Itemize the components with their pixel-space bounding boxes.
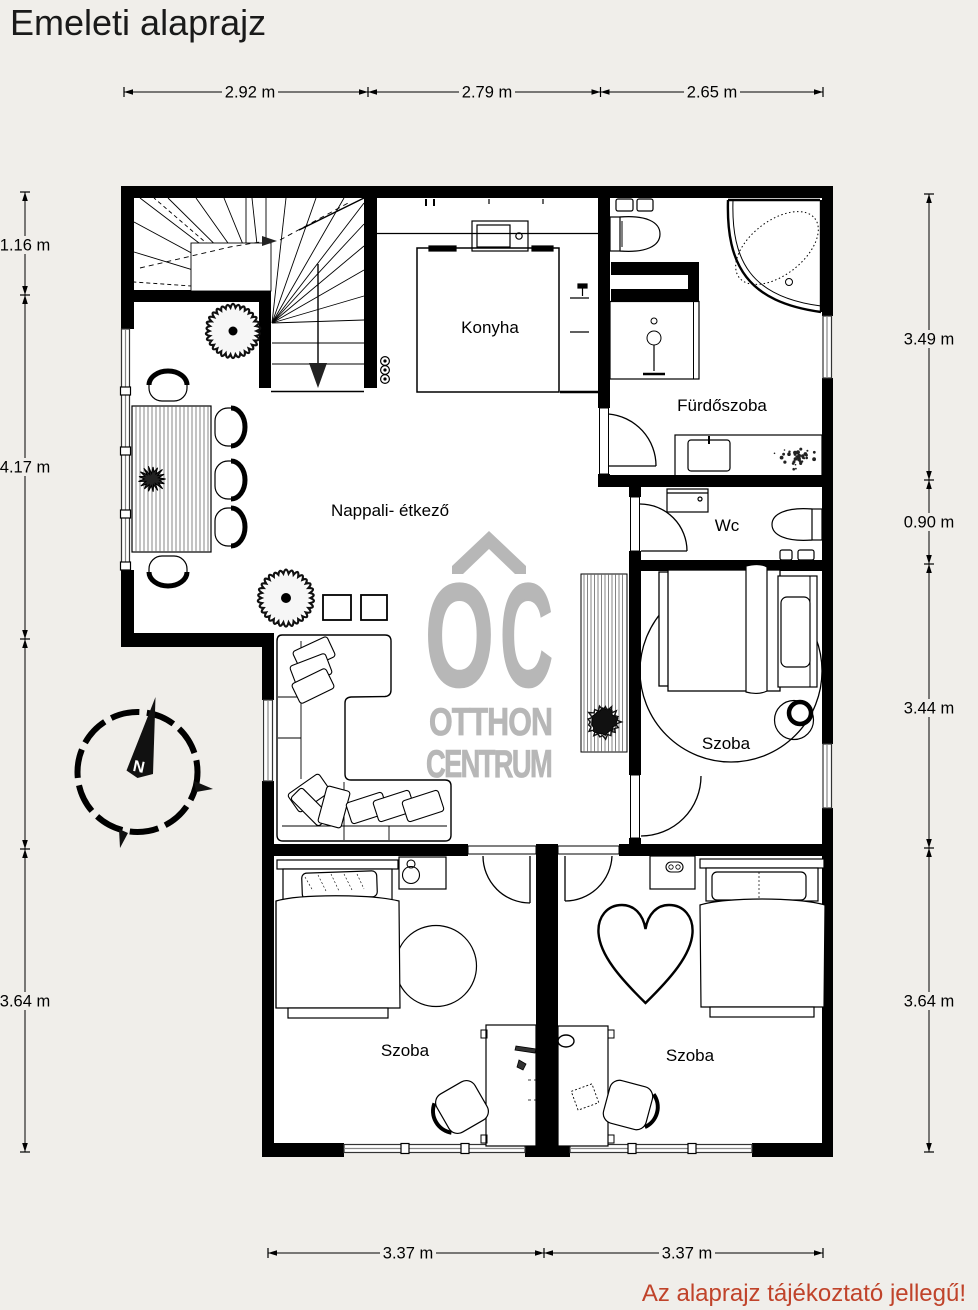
svg-text:Szoba: Szoba: [381, 1041, 430, 1060]
svg-text:Nappali- étkező: Nappali- étkező: [331, 501, 449, 520]
svg-text:3.37 m: 3.37 m: [662, 1245, 712, 1263]
svg-text:Szoba: Szoba: [702, 734, 751, 753]
svg-text:Szoba: Szoba: [666, 1046, 715, 1065]
svg-text:2.65 m: 2.65 m: [687, 84, 737, 102]
svg-text:Emeleti alaprajz: Emeleti alaprajz: [10, 2, 266, 43]
svg-text:3.64 m: 3.64 m: [904, 993, 954, 1011]
svg-text:3.44 m: 3.44 m: [904, 700, 954, 718]
svg-text:Az alaprajz tájékoztató jelleg: Az alaprajz tájékoztató jellegű!: [642, 1280, 966, 1307]
svg-text:2.79 m: 2.79 m: [462, 84, 512, 102]
svg-text:CENTRUM: CENTRUM: [426, 743, 553, 786]
svg-text:3.37 m: 3.37 m: [383, 1245, 433, 1263]
svg-text:0.90 m: 0.90 m: [904, 514, 954, 532]
svg-text:Fürdőszoba: Fürdőszoba: [677, 396, 767, 415]
svg-text:O: O: [425, 554, 494, 718]
svg-text:3.49 m: 3.49 m: [904, 331, 954, 349]
svg-text:Konyha: Konyha: [461, 318, 519, 337]
svg-text:C: C: [500, 554, 553, 718]
svg-text:1.16 m: 1.16 m: [0, 237, 50, 255]
svg-text:3.64 m: 3.64 m: [0, 993, 50, 1011]
svg-text:2.92 m: 2.92 m: [225, 84, 275, 102]
svg-text:OTTHON: OTTHON: [429, 700, 553, 743]
svg-text:Wc: Wc: [715, 516, 740, 535]
svg-text:4.17 m: 4.17 m: [0, 459, 50, 477]
